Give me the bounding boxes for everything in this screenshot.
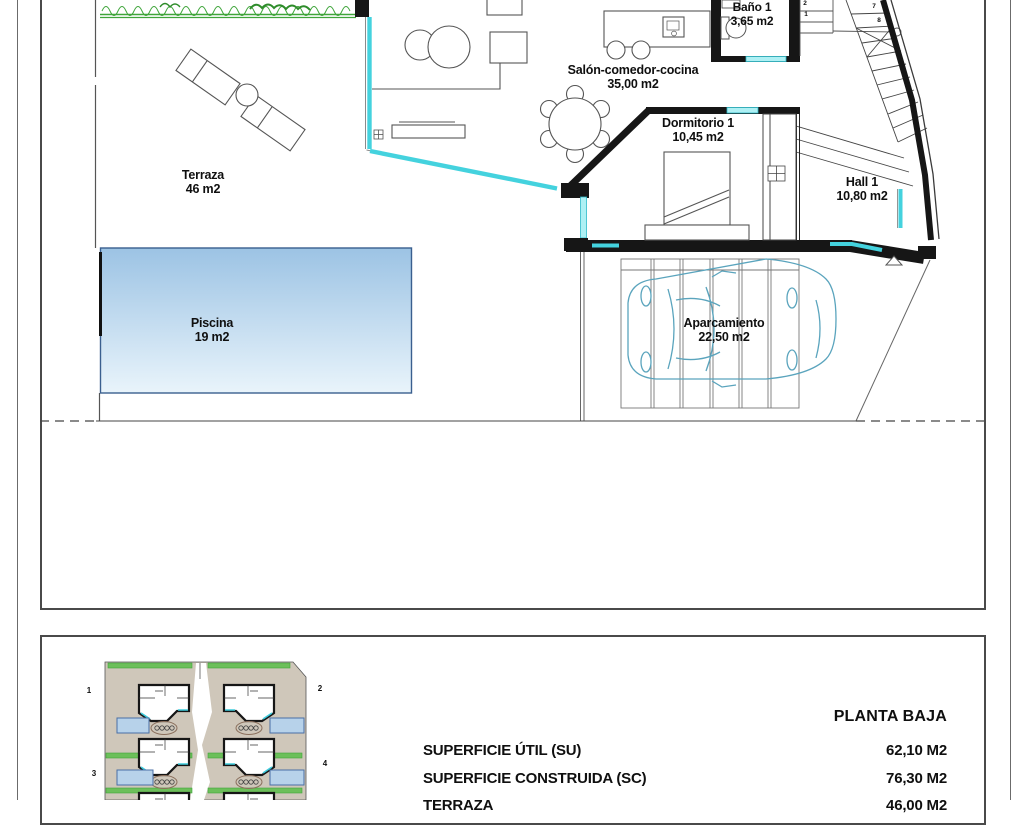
plot-number-1: 1 bbox=[87, 687, 91, 695]
side-table-symbol bbox=[236, 84, 258, 106]
step-number: 1 bbox=[804, 12, 808, 19]
step-number: 2 bbox=[803, 1, 807, 8]
socket-symbol bbox=[374, 130, 383, 139]
plot-number-2: 2 bbox=[318, 685, 322, 693]
stool-symbol bbox=[632, 41, 650, 59]
dining-table bbox=[541, 86, 610, 163]
summary-row: SUPERFICIE CONSTRUIDA (SC) 76,30 M2 bbox=[423, 770, 947, 787]
summary-row-label: SUPERFICIE ÚTIL (SU) bbox=[423, 742, 581, 759]
room-label-terraza: Terraza 46 m2 bbox=[182, 168, 224, 197]
wardrobe bbox=[763, 114, 796, 240]
room-label-piscina: Piscina 19 m2 bbox=[191, 316, 233, 345]
summary-row-label: SUPERFICIE CONSTRUIDA (SC) bbox=[423, 770, 646, 787]
tv-bench bbox=[374, 122, 465, 139]
summary-title: PLANTA BAJA bbox=[834, 708, 947, 726]
room-label-dormitorio: Dormitorio 1 10,45 m2 bbox=[662, 116, 734, 145]
pool bbox=[101, 248, 412, 393]
bed-symbol bbox=[645, 152, 749, 240]
summary-row-value: 62,10 M2 bbox=[886, 742, 947, 759]
pane-symbol bbox=[768, 166, 785, 181]
bedroom-window-left bbox=[581, 197, 587, 238]
room-label-hall: Hall 1 10,80 m2 bbox=[836, 175, 887, 204]
floor-plan-drawing bbox=[0, 0, 1024, 620]
bottom-wall bbox=[566, 240, 924, 265]
step-number: 8 bbox=[877, 18, 881, 25]
room-label-aparcamiento: Aparcamiento 22,50 m2 bbox=[684, 316, 765, 345]
plot-boundary-left bbox=[96, 0, 100, 421]
stool-symbol bbox=[607, 41, 625, 59]
hedge-strip bbox=[100, 4, 356, 18]
step-number: 7 bbox=[872, 4, 876, 11]
plot-number-4: 4 bbox=[323, 760, 327, 768]
bedroom-window-top bbox=[727, 108, 758, 114]
plot-number-3: 3 bbox=[92, 770, 96, 778]
wall-stub bbox=[355, 0, 369, 17]
sun-loungers bbox=[176, 49, 305, 151]
sofa-group bbox=[372, 0, 527, 89]
hall-window bbox=[898, 189, 901, 228]
kitchen-island bbox=[604, 11, 710, 59]
summary-row: SUPERFICIE ÚTIL (SU) 62,10 M2 bbox=[423, 742, 947, 759]
bathroom-window bbox=[746, 57, 786, 62]
summary-row-value: 76,30 M2 bbox=[886, 770, 947, 787]
room-label-bano: Baño 1 3,65 m2 bbox=[731, 1, 774, 28]
room-label-salon: Salón-comedor-cocina 35,00 m2 bbox=[568, 63, 699, 92]
glass-wall bbox=[355, 0, 589, 198]
exterior-wall-right bbox=[883, 0, 939, 259]
